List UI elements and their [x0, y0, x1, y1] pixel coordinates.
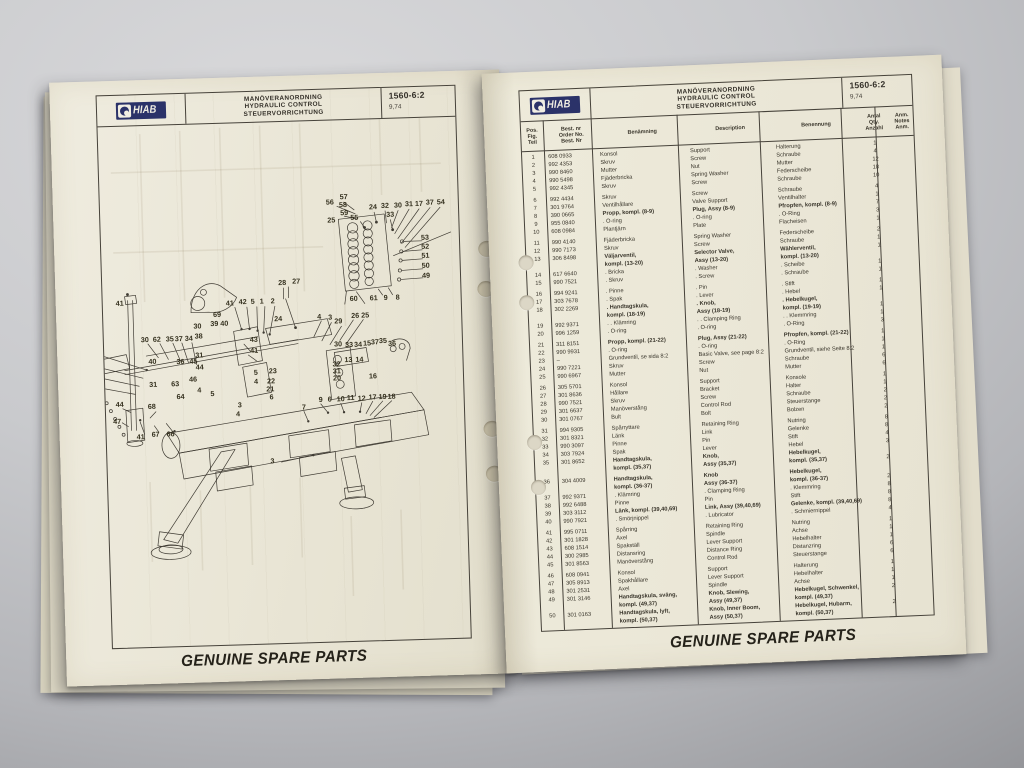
cell-order-no	[564, 618, 616, 628]
diagram-callout: 44	[196, 362, 204, 371]
diagram-callout: 17	[415, 199, 423, 208]
diagram-callout: 7	[302, 402, 306, 411]
photo-scene: HIAB MANÖVERANORDNING HYDRAULIC CONTROL …	[0, 0, 1024, 768]
diagram-callout: 69	[213, 310, 221, 319]
diagram-callout: 40	[148, 357, 156, 366]
diagram-callout: 31	[195, 350, 203, 359]
col-header-notes: Anm.NotesAnm.	[890, 106, 913, 137]
diagram-callout: 4	[236, 409, 240, 418]
col-header-order-no: Best. nrOrder No.Best. Nr	[543, 119, 596, 151]
diagram-callout: 36	[388, 339, 396, 348]
diagram-callout: 37	[371, 337, 379, 346]
diagram-callout: 15	[363, 338, 371, 347]
cell-qty: 6	[875, 546, 909, 555]
cell-pos	[542, 620, 564, 629]
diagram-callout: 30	[141, 335, 149, 344]
diagram-callout: 37	[175, 334, 183, 343]
doc-number: 1560-6:2	[849, 78, 911, 91]
diagram-callout: 4	[197, 385, 201, 394]
diagram-callout: 38	[97, 360, 99, 369]
diagram-callout: 38	[195, 331, 203, 340]
diagram-callout: 33	[345, 340, 353, 349]
cell-notes	[901, 358, 923, 367]
diagram-callout: 37	[426, 197, 434, 206]
diagram-callout: 6	[269, 392, 273, 401]
diagram-callout: 41	[116, 299, 124, 308]
diagram-callout: 66	[166, 429, 174, 438]
diagram-callout: 44	[116, 400, 124, 409]
diagram-callout: 48	[97, 347, 100, 356]
diagram-callout: 35	[166, 334, 174, 343]
diagram-callout: 43	[250, 335, 258, 344]
cell-pos	[535, 467, 557, 476]
diagram-callout: 36	[176, 357, 184, 366]
diagram-callout: 54	[437, 197, 445, 206]
left-page: HIAB MANÖVERANORDNING HYDRAULIC CONTROL …	[49, 69, 517, 686]
cell-pos: 10	[525, 228, 547, 237]
right-page: HIAB MANÖVERANORDNING HYDRAULIC CONTROL …	[482, 55, 967, 674]
cell-notes	[911, 604, 933, 613]
diagram-callout: 67	[151, 430, 159, 439]
diagram-callout: 11	[347, 393, 355, 402]
cell-notes	[893, 170, 915, 179]
diagram-callout: 51	[421, 251, 429, 260]
table-body: 1 608 0933 Konsol Support Halterung 1 2 …	[522, 135, 934, 631]
cell-qty: 1	[863, 265, 897, 274]
cell-notes	[899, 315, 921, 324]
cell-pos: 20	[529, 330, 551, 339]
cell-notes	[895, 213, 917, 222]
diagram-callout: 34	[185, 334, 193, 343]
diagram-callout: 19	[378, 392, 386, 401]
diagram-callout: 65	[97, 379, 98, 388]
cell-qty: 1	[861, 214, 895, 223]
hiab-logo-mark-icon	[531, 99, 545, 113]
diagram-callout: 31	[405, 199, 413, 208]
diagram-callout: 10	[337, 394, 345, 403]
paper-showthrough	[109, 116, 453, 603]
diagram-callout: 35	[379, 336, 387, 345]
diagram-callout: 4	[317, 312, 321, 321]
cell-notes	[909, 546, 931, 555]
diagram-callout: 60	[350, 294, 358, 303]
diagram-callout: 5	[254, 368, 258, 377]
diagram-callout: 41	[250, 346, 258, 355]
diagram-callout: 47	[113, 417, 121, 426]
diagram-callout: 25	[361, 310, 369, 319]
cell-qty: 2	[869, 402, 903, 411]
diagram-callout: 41	[137, 432, 145, 441]
diagram-callout: 4	[254, 377, 258, 386]
diagram-callout: 46	[189, 375, 197, 384]
cell-notes	[897, 264, 919, 273]
diagram-callout: 12	[358, 394, 366, 403]
diagram-svg: 5657585925552432303117375433535251504960…	[97, 115, 468, 646]
diagram-callout: 20	[333, 373, 341, 382]
diagram-callout: 5	[210, 389, 214, 398]
diagram-callout: 16	[369, 371, 377, 380]
doc-date: 9,74	[850, 91, 912, 101]
cell-qty: 3	[865, 316, 899, 325]
diagram-callout: 40	[220, 319, 228, 328]
cell-pos: 30	[533, 416, 555, 425]
parts-table: HIAB MANÖVERANORDNING HYDRAULIC CONTROL …	[518, 74, 934, 632]
doc-number-cell: 1560-6:2 9,74	[842, 75, 912, 108]
diagram-callout: 41	[226, 298, 234, 307]
diagram-callout: 13	[344, 355, 352, 364]
diagram-callout: 30	[394, 200, 402, 209]
diagram-callout: 34	[354, 340, 362, 349]
diagram-callout: 6	[328, 395, 332, 404]
diagram-callout: 39	[97, 370, 99, 379]
cell-qty: 4	[873, 503, 907, 512]
diagram-callout: 24	[274, 314, 282, 323]
diagram-callout: 9	[384, 293, 388, 302]
diagram-callout: 55	[350, 213, 358, 222]
diagram-callout: 18	[387, 392, 395, 401]
diagram-callout: 3	[328, 313, 332, 322]
diagram-callout: 2	[271, 296, 275, 305]
left-page-frame: HIAB MANÖVERANORDNING HYDRAULIC CONTROL …	[96, 85, 472, 649]
diagram-callout: 63	[171, 379, 179, 388]
cell-qty: 2	[871, 453, 905, 462]
cell-pos: 25	[531, 373, 553, 382]
diagram-callout: 29	[334, 316, 342, 325]
diagram-callout: 31	[149, 380, 157, 389]
diagram-callout: 17	[368, 392, 376, 401]
diagram-callout: 28	[278, 278, 286, 287]
diagram-callout: 23	[269, 366, 277, 375]
diagram-callout: 8	[396, 293, 400, 302]
diagram-callout: 49	[422, 271, 430, 280]
cell-qty: 6	[867, 359, 901, 368]
diagram-callout: 50	[422, 261, 430, 270]
diagram-callout: 30	[193, 321, 201, 330]
diagram-callout: 3	[270, 456, 274, 465]
diagram-callout: 26	[351, 311, 359, 320]
diagram-callout: 59	[340, 208, 348, 217]
diagram-callout: 39	[210, 319, 218, 328]
cell-notes	[905, 452, 927, 461]
diagram-callout: 1	[260, 297, 264, 306]
diagram-callout: 53	[421, 233, 429, 242]
hiab-logo-text: HIAB	[546, 98, 570, 111]
col-header-pos: Pos.Fig.Teil	[521, 121, 544, 152]
cell-qty	[877, 605, 911, 614]
cell-notes	[903, 401, 925, 410]
diagram-callout: 9	[319, 395, 323, 404]
diagram-callout: 61	[370, 293, 378, 302]
diagram-callout: 5	[251, 297, 255, 306]
diagram-callout: 24	[369, 202, 377, 211]
cell-qty: 10	[859, 171, 893, 180]
cell-pos: 15	[527, 279, 549, 288]
diagram-callout: 64	[176, 392, 184, 401]
diagram-callout: 62	[153, 335, 161, 344]
diagram-callout: 30	[334, 339, 342, 348]
diagram-callout: 52	[421, 242, 429, 251]
diagram-callout: 68	[148, 402, 156, 411]
diagram-callout: 56	[326, 197, 334, 206]
cell-pos: 40	[537, 518, 559, 527]
cell-pos: 5	[523, 185, 545, 194]
diagram-callout: 33	[386, 210, 394, 219]
diagram-callout: 32	[381, 201, 389, 210]
hiab-logo: HIAB	[529, 95, 580, 114]
diagram-callout: 27	[292, 276, 300, 285]
cell-pos: 45	[539, 561, 561, 570]
diagram-callout: 42	[239, 297, 247, 306]
diagram-callout: 14	[355, 355, 363, 364]
diagram-callout: 3	[238, 400, 242, 409]
logo-cell: HIAB	[519, 88, 591, 121]
cell-notes	[907, 503, 929, 512]
diagram-callout: 25	[327, 215, 335, 224]
